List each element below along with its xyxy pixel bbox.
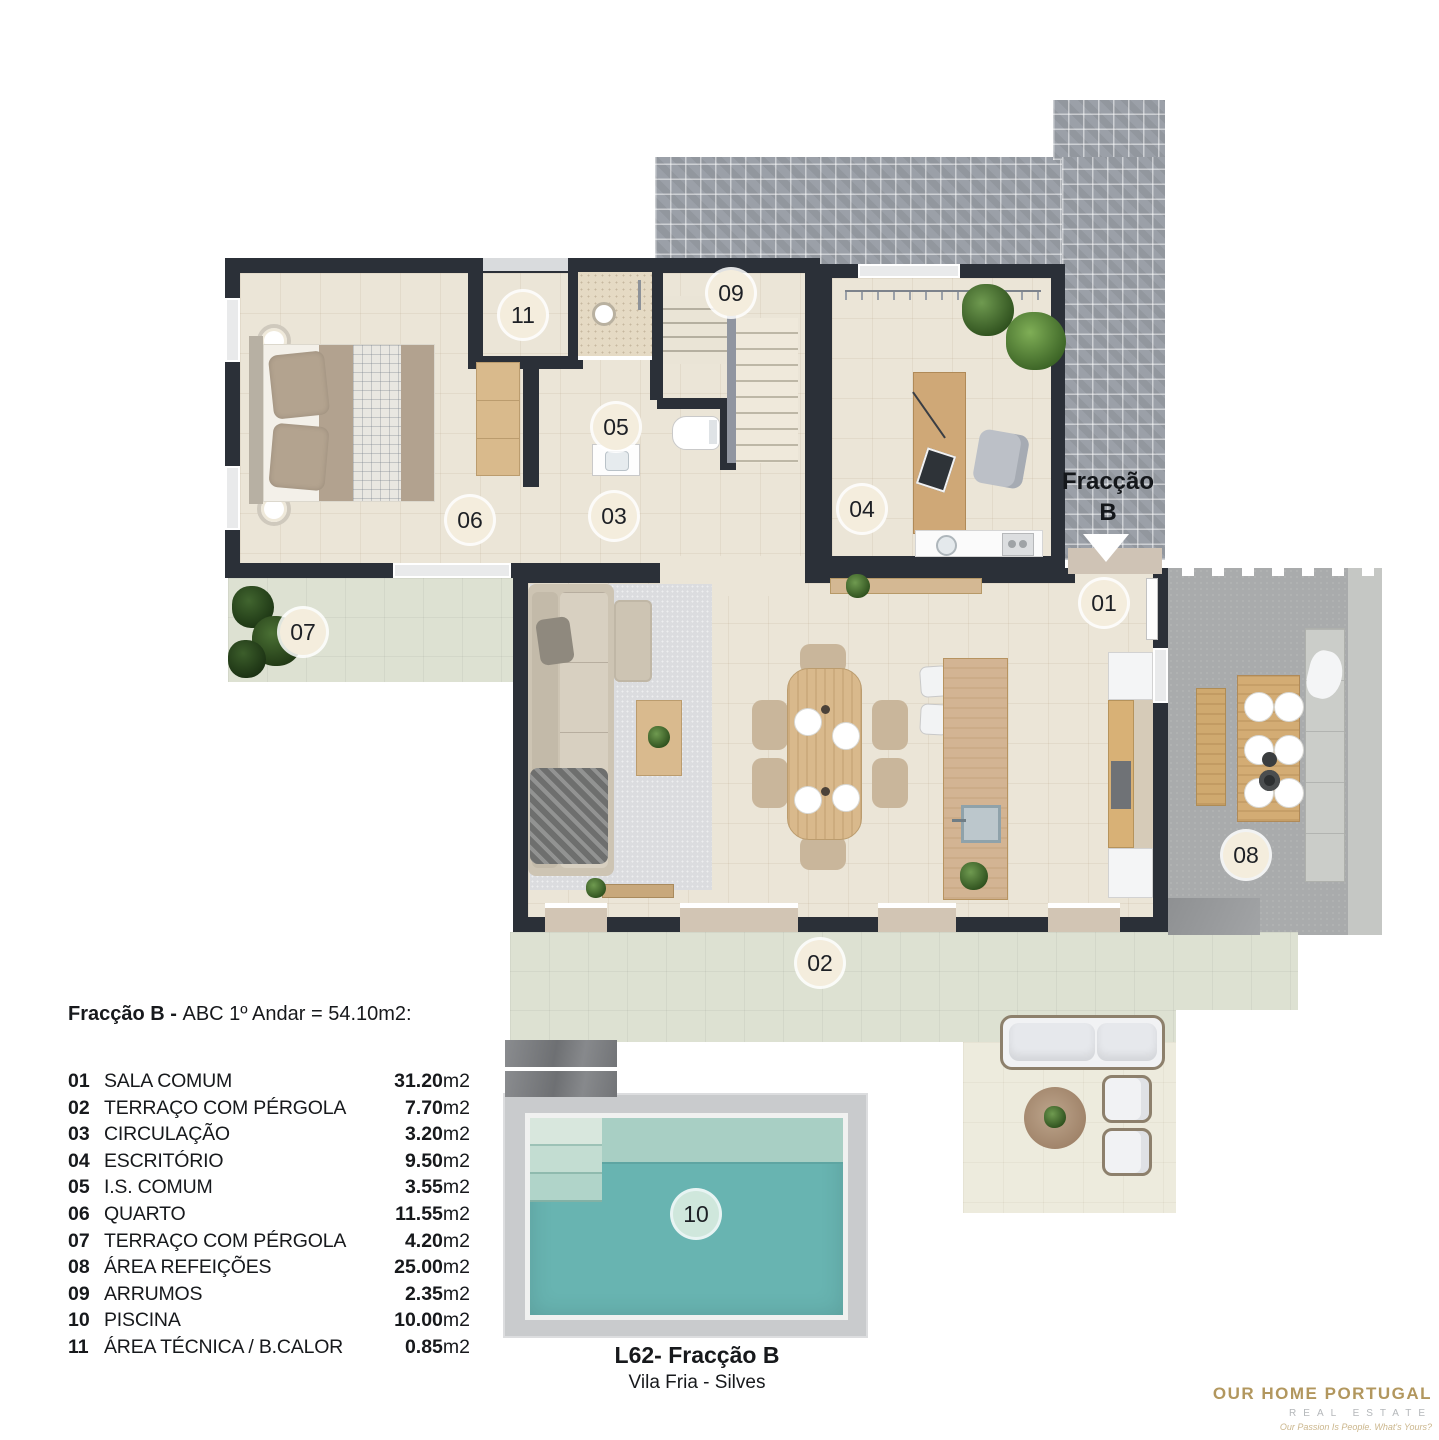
- terrace-08-side-ledge: [1348, 568, 1382, 935]
- office-plant: [1006, 312, 1066, 370]
- garden-armchair: [1102, 1075, 1152, 1123]
- stairs-lower-flight: [736, 318, 798, 463]
- toilet: [672, 416, 720, 450]
- legend-room-name: QUARTO: [104, 1203, 395, 1226]
- outdoor-dining-table: [1237, 675, 1300, 822]
- agency-subtitle: REAL ESTATE: [1140, 1408, 1432, 1419]
- office-plant: [962, 284, 1014, 336]
- bed-plaid-throw: [353, 345, 401, 501]
- living-side-window: [1153, 648, 1168, 703]
- legend-row-05: 05I.S. COMUM3.55 m2: [68, 1176, 470, 1203]
- legend-room-number: 04: [68, 1150, 104, 1173]
- living-glass-door: [1048, 903, 1120, 932]
- agency-tagline: Our Passion Is People. What's Yours?: [1140, 1422, 1432, 1432]
- legend-room-number: 10: [68, 1309, 104, 1332]
- entrance-arrow-icon: [1083, 534, 1129, 562]
- legend: Fracção B - ABC 1º Andar = 54.10m2: 01SA…: [68, 1003, 470, 1363]
- legend-room-area: 9.50: [405, 1150, 443, 1173]
- bedroom-sideboard: [476, 362, 520, 476]
- bedroom-right-wall: [523, 369, 539, 487]
- terrace-plant: [228, 640, 266, 678]
- legend-row-01: 01SALA COMUM31.20 m2: [68, 1070, 470, 1097]
- plan-subtitle: Vila Fria - Silves: [497, 1372, 897, 1394]
- garden-table-plant: [1044, 1106, 1066, 1128]
- table-decor: [821, 787, 830, 796]
- entrance-door-leaf: [1146, 578, 1158, 640]
- bed-pillow: [268, 350, 330, 420]
- legend-room-number: 11: [68, 1336, 104, 1359]
- shower-glass: [578, 356, 652, 360]
- legend-area-unit: m2: [443, 1176, 470, 1199]
- outdoor-bench: [1196, 688, 1226, 806]
- bench-cloth: [1303, 648, 1348, 703]
- bed: [263, 344, 435, 502]
- legend-room-area: 25.00: [394, 1256, 443, 1279]
- bed-pillow: [268, 423, 329, 492]
- legend-row-10: 10PISCINA10.00 m2: [68, 1309, 470, 1336]
- garden-sofa: [1000, 1015, 1165, 1070]
- garden-sofa-cushion: [1097, 1023, 1157, 1061]
- legend-row-04: 04ESCRITÓRIO9.50 m2: [68, 1150, 470, 1177]
- legend-room-number: 05: [68, 1176, 104, 1199]
- bed-headboard: [249, 336, 263, 504]
- bedroom-window: [225, 298, 240, 362]
- brick-paving-top-band: [655, 157, 1065, 270]
- legend-row-11: 11ÁREA TÉCNICA / B.CALOR0.85 m2: [68, 1336, 470, 1363]
- plate: [1244, 692, 1274, 722]
- sideboard-divider: [477, 438, 519, 439]
- legend-room-name: ÁREA REFEIÇÕES: [104, 1256, 394, 1279]
- table-decor: [1259, 770, 1280, 791]
- legend-room-number: 03: [68, 1123, 104, 1146]
- legend-room-area: 3.55: [405, 1176, 443, 1199]
- legend-room-name: ÁREA TÉCNICA / B.CALOR: [104, 1336, 405, 1359]
- legend-row-08: 08ÁREA REFEIÇÕES25.00 m2: [68, 1256, 470, 1283]
- entrance-label-line2: B: [1050, 497, 1166, 528]
- legend-room-name: I.S. COMUM: [104, 1176, 405, 1199]
- sideboard-divider: [477, 400, 519, 401]
- shower-column: [638, 280, 641, 310]
- legend-room-area: 31.20: [394, 1070, 443, 1093]
- coffee-table-plant: [648, 726, 670, 748]
- tech-room-vent: [483, 258, 568, 271]
- living-glass-door: [878, 903, 956, 932]
- dining-chair: [752, 700, 788, 750]
- living-glass-door: [680, 903, 798, 932]
- plate: [832, 722, 860, 750]
- legend-area-unit: m2: [443, 1309, 470, 1332]
- console-plant: [846, 574, 870, 598]
- outdoor-lounge-bench: [1305, 628, 1345, 882]
- terrace-08-shadow-patch: [1168, 898, 1260, 935]
- legend-area-unit: m2: [443, 1070, 470, 1093]
- toilet-tank: [709, 420, 717, 444]
- built-in-oven: [1111, 761, 1131, 809]
- legend-room-number: 07: [68, 1230, 104, 1253]
- dining-chair: [872, 700, 908, 750]
- legend-room-number: 02: [68, 1097, 104, 1120]
- legend-room-name: ARRUMOS: [104, 1283, 405, 1306]
- plate: [1274, 735, 1304, 765]
- wall-cabinet-lower: [1108, 848, 1153, 898]
- plate: [794, 786, 822, 814]
- garden-step: [505, 1040, 617, 1067]
- burner: [1019, 540, 1027, 548]
- pergola-notch: [1212, 565, 1224, 576]
- dining-chair: [752, 758, 788, 808]
- legend-room-number: 01: [68, 1070, 104, 1093]
- stairs-divider: [727, 298, 736, 463]
- legend-area-unit: m2: [443, 1283, 470, 1306]
- wall-cabinet-upper: [1108, 652, 1153, 700]
- sofa-throw-blanket: [530, 768, 608, 864]
- agency-logo: OUR HOME PORTUGAL REAL ESTATE Our Passio…: [1140, 1384, 1432, 1432]
- plate: [794, 708, 822, 736]
- legend-room-area: 4.20: [405, 1230, 443, 1253]
- legend-area-unit: m2: [443, 1230, 470, 1253]
- legend-header: Fracção B - ABC 1º Andar = 54.10m2:: [68, 1003, 470, 1026]
- garden-step: [505, 1071, 617, 1097]
- pool-step: [530, 1146, 602, 1174]
- legend-room-number: 09: [68, 1283, 104, 1306]
- legend-header-area: ABC 1º Andar = 54.10m2:: [182, 1003, 411, 1025]
- entrance-label-line1: Fracção: [1050, 466, 1166, 497]
- legend-room-area: 10.00: [394, 1309, 443, 1332]
- legend-room-number: 08: [68, 1256, 104, 1279]
- dining-chair: [800, 836, 846, 870]
- legend-room-name: TERRAÇO COM PÉRGOLA: [104, 1230, 405, 1253]
- legend-area-unit: m2: [443, 1150, 470, 1173]
- legend-area-unit: m2: [443, 1256, 470, 1279]
- legend-room-name: ESCRITÓRIO: [104, 1150, 405, 1173]
- tv-console: [602, 884, 674, 898]
- tall-wood-cabinet: [1108, 700, 1134, 848]
- pergola-notch: [1272, 565, 1284, 576]
- garden-sofa-cushion: [1009, 1023, 1095, 1061]
- legend-room-area: 7.70: [405, 1097, 443, 1120]
- island-faucet: [952, 819, 966, 822]
- garden-armchair: [1102, 1128, 1152, 1176]
- legend-room-name: PISCINA: [104, 1309, 394, 1332]
- table-decor: [1262, 752, 1277, 767]
- plan-footer: L62- Fracção B Vila Fria - Silves: [497, 1342, 897, 1394]
- pergola-notch: [1302, 565, 1314, 576]
- legend-row-07: 07TERRAÇO COM PÉRGOLA4.20 m2: [68, 1230, 470, 1257]
- pergola-notch: [1182, 565, 1194, 576]
- sofa: [528, 584, 614, 876]
- living-glass-door: [545, 903, 607, 932]
- legend-row-09: 09ARRUMOS2.35 m2: [68, 1283, 470, 1310]
- legend-area-unit: m2: [443, 1123, 470, 1146]
- legend-rows: 01SALA COMUM31.20 m202TERRAÇO COM PÉRGOL…: [68, 1070, 470, 1363]
- office-desk: [913, 372, 966, 534]
- legend-room-name: CIRCULAÇÃO: [104, 1123, 405, 1146]
- dining-chair: [872, 758, 908, 808]
- legend-row-02: 02TERRAÇO COM PÉRGOLA7.70 m2: [68, 1097, 470, 1124]
- bathroom-vanity: [592, 444, 640, 476]
- island-plant: [960, 862, 988, 890]
- office-slider-door: [858, 264, 960, 278]
- legend-room-area: 0.85: [405, 1336, 443, 1359]
- tv-plant: [586, 878, 606, 898]
- legend-room-area: 11.55: [395, 1203, 443, 1226]
- pool-basin: [525, 1113, 848, 1320]
- cooktop: [1002, 533, 1034, 556]
- pergola-notch: [1362, 565, 1374, 576]
- tall-cabinet-backing: [1134, 700, 1153, 848]
- entrance-label: Fracção B: [1050, 466, 1166, 528]
- shower-drain: [592, 302, 616, 326]
- pool-step: [530, 1174, 602, 1202]
- kitchenette-sink: [936, 535, 957, 556]
- laptop: [916, 447, 956, 492]
- plate: [832, 784, 860, 812]
- wc-nook-top-wall: [657, 398, 723, 409]
- legend-room-area: 3.20: [405, 1123, 443, 1146]
- bedroom-slider-door: [393, 563, 511, 578]
- legend-row-03: 03CIRCULAÇÃO3.20 m2: [68, 1123, 470, 1150]
- stairs-upper-flight: [663, 296, 727, 364]
- office-chair: [972, 428, 1031, 490]
- bedroom-window: [225, 466, 240, 530]
- island-sink: [961, 805, 1001, 843]
- dining-table: [787, 668, 862, 840]
- legend-room-name: TERRAÇO COM PÉRGOLA: [104, 1097, 405, 1120]
- sofa-chaise: [614, 600, 652, 682]
- pool-step: [530, 1118, 602, 1146]
- legend-room-number: 06: [68, 1203, 104, 1226]
- agency-name: OUR HOME PORTUGAL: [1140, 1384, 1432, 1404]
- legend-area-unit: m2: [443, 1097, 470, 1120]
- plan-title: L62- Fracção B: [497, 1342, 897, 1369]
- sofa-pillow: [535, 616, 575, 666]
- pergola-notch: [1332, 565, 1344, 576]
- brick-paving-top-column: [1053, 100, 1165, 160]
- legend-room-area: 2.35: [405, 1283, 443, 1306]
- legend-area-unit: m2: [443, 1336, 470, 1359]
- table-decor: [821, 705, 830, 714]
- pergola-notch: [1242, 565, 1254, 576]
- legend-header-fraction: Fracção B -: [68, 1003, 182, 1025]
- legend-room-name: SALA COMUM: [104, 1070, 394, 1093]
- floorplan-canvas: Fracção B 0102030405060708091011 Fracção…: [0, 0, 1439, 1440]
- burner: [1008, 540, 1016, 548]
- pen: [912, 391, 946, 438]
- plate: [1274, 692, 1304, 722]
- legend-area-unit: m2: [443, 1203, 470, 1226]
- tech-room-left-wall: [468, 258, 483, 368]
- legend-row-06: 06QUARTO11.55 m2: [68, 1203, 470, 1230]
- kitchenette-counter: [915, 530, 1043, 557]
- vanity-basin: [605, 451, 629, 471]
- terrace-02-floor: [510, 932, 1298, 1010]
